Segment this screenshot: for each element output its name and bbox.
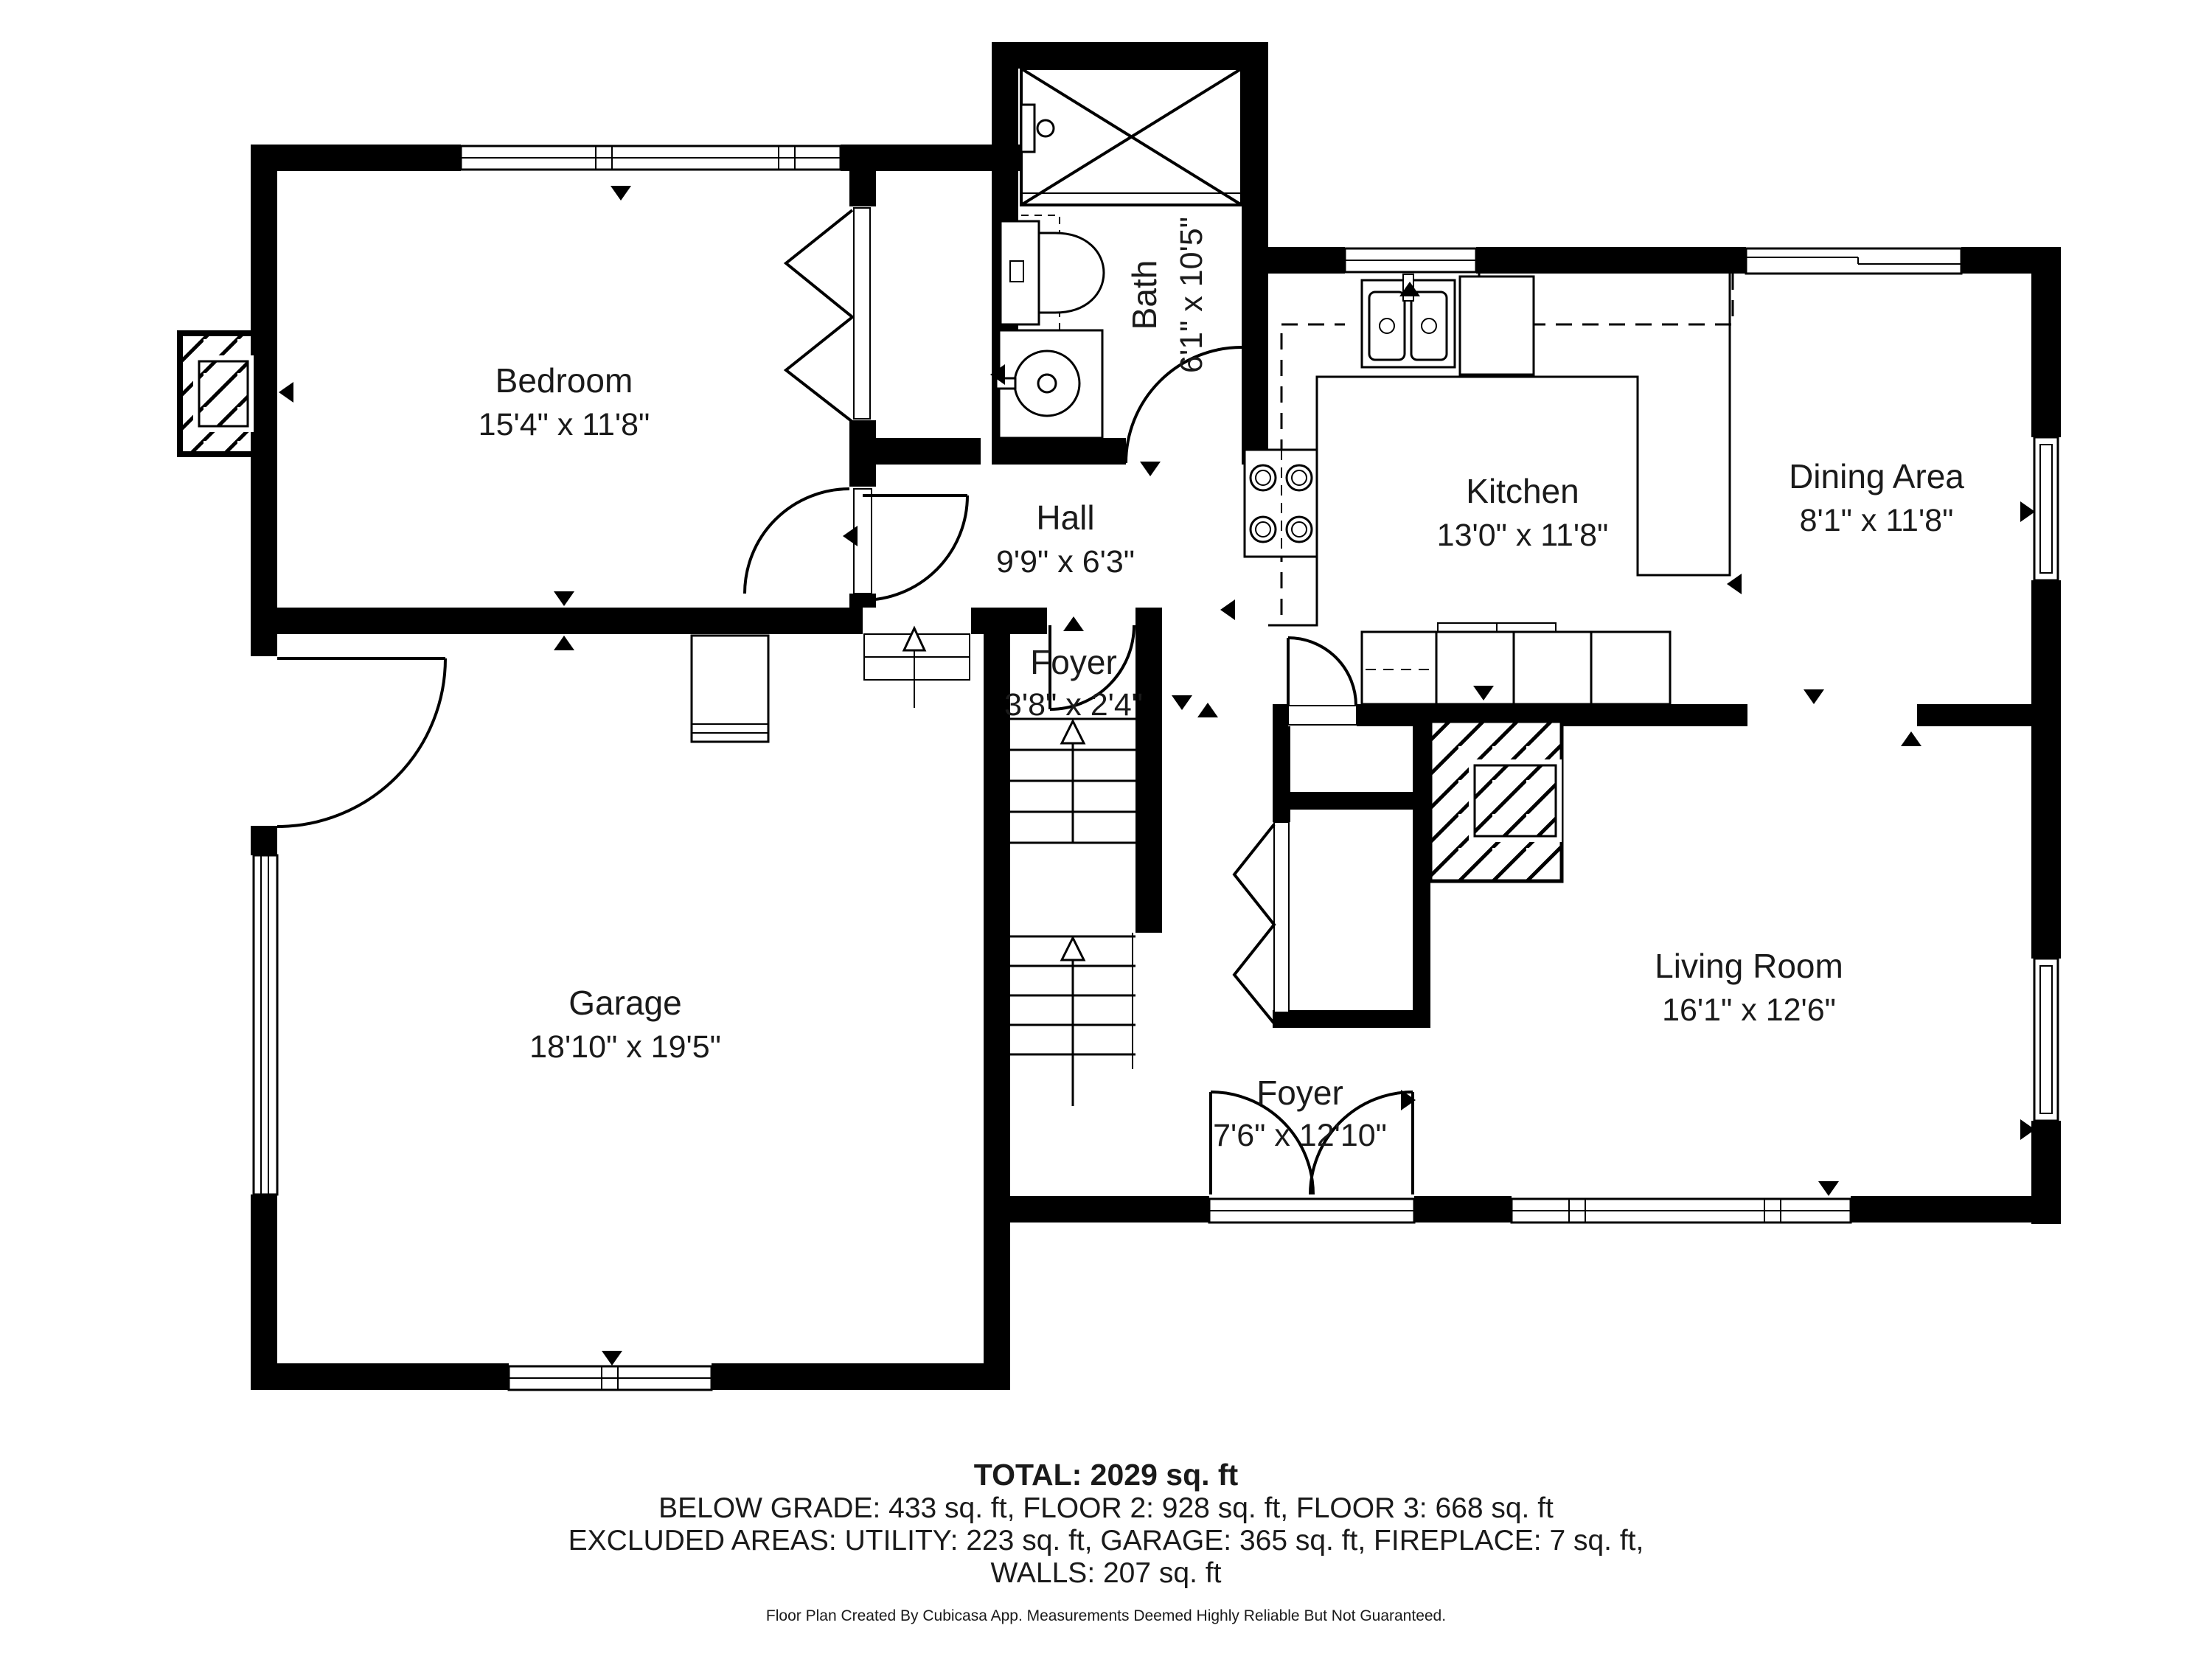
foyer-upper-label: Foyer [1030,643,1117,681]
bedroom-label: Bedroom [495,361,633,400]
fireplace [1430,721,1562,881]
dining-label: Dining Area [1789,457,1964,495]
foyer-lower-label: Foyer [1256,1074,1343,1112]
living-room-label: Living Room [1655,947,1843,985]
utility-unit [692,636,768,742]
living-room-dims: 16'1" x 12'6" [1662,992,1836,1028]
chimney [180,333,254,454]
shower-head [1037,120,1054,136]
sink-basin-left [1369,292,1405,360]
kitchen-dims: 13'0" x 11'8" [1437,518,1609,553]
cabinet-row [1362,623,1670,704]
refrigerator [1460,276,1534,375]
garage-label: Garage [568,984,681,1022]
bath-label: Bath [1125,260,1164,330]
foyer-lower-dims: 7'6" x 12'10" [1213,1118,1387,1153]
bath-dims: 6'1" x 10'5" [1174,217,1209,373]
shower-valve [1021,105,1034,152]
hall-label: Hall [1036,498,1094,537]
summary-walls: WALLS: 207 sq. ft [991,1557,1222,1589]
floor-plan-page: Bedroom 15'4" x 11'8" Bath 6'1" x 10'5" … [0,0,2212,1659]
toilet-flush [1010,261,1023,282]
summary-excluded: EXCLUDED AREAS: UTILITY: 223 sq. ft, GAR… [568,1525,1644,1557]
dining-dims: 8'1" x 11'8" [1800,503,1954,538]
foyer-upper-dims: 3'8" x 2'4" [1004,687,1143,723]
kitchen-label: Kitchen [1466,472,1579,510]
floor-plan-canvas: Bedroom 15'4" x 11'8" Bath 6'1" x 10'5" … [0,0,2212,1659]
summary-floors: BELOW GRADE: 433 sq. ft, FLOOR 2: 928 sq… [658,1492,1554,1524]
summary-total: TOTAL: 2029 sq. ft [974,1458,1239,1492]
bedroom-dims: 15'4" x 11'8" [479,407,650,442]
sink-basin-right [1411,292,1447,360]
disclaimer-text: Floor Plan Created By Cubicasa App. Meas… [766,1607,1446,1624]
garage-dims: 18'10" x 19'5" [529,1029,721,1065]
hall-dims: 9'9" x 6'3" [996,544,1135,580]
